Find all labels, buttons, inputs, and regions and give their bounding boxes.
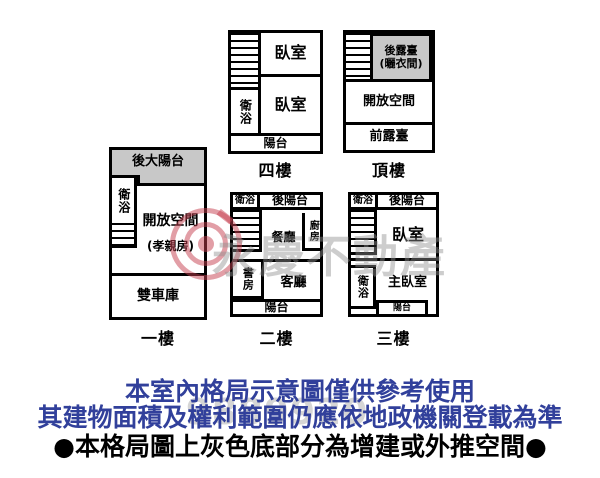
room-bathroom: 衛浴 bbox=[112, 175, 137, 223]
room-rear-large-balcony: 後大陽台 bbox=[112, 150, 204, 175]
room-balcony: 陽台 bbox=[233, 299, 320, 314]
room-bathroom: 衛浴 bbox=[231, 90, 261, 133]
room-rear-balcony: 後陽台 bbox=[378, 195, 436, 210]
room-garage: 雙車庫 bbox=[112, 288, 204, 304]
floor-label-3f: 三樓 bbox=[348, 325, 439, 349]
disclaimer-line-3: ●本格局圖上灰色底部分為增建或外推空間● bbox=[0, 427, 600, 463]
floor-label-4f: 四樓 bbox=[228, 157, 323, 181]
floor-label-1f: 一樓 bbox=[109, 325, 207, 349]
room-open-space: 開放空間 bbox=[346, 82, 432, 125]
floorplan-canvas: 衛浴 臥室 臥室 陽台 四樓 後露臺 (曬衣間) 開放空間 前露臺 頂樓 後大陽… bbox=[0, 0, 600, 478]
floorplan-4f: 衛浴 臥室 臥室 陽台 bbox=[228, 30, 323, 154]
stairs-pattern bbox=[112, 223, 137, 248]
floor-label-roof: 頂樓 bbox=[343, 157, 435, 181]
room-front-terrace: 前露臺 bbox=[346, 125, 432, 150]
stairs-pattern bbox=[346, 33, 370, 82]
room-bedroom: 臥室 bbox=[261, 77, 320, 133]
room-bedroom: 臥室 bbox=[261, 33, 320, 77]
room-rear-large-balcony-step bbox=[137, 175, 204, 186]
room-rear-terrace-label: 後露臺 bbox=[385, 45, 418, 58]
floor-label-2f: 二樓 bbox=[230, 325, 323, 349]
stairs-pattern bbox=[231, 33, 261, 90]
room-balcony: 陽台 bbox=[231, 133, 320, 151]
room-rear-balcony: 後陽台 bbox=[260, 195, 320, 210]
room-bathroom: 衛浴 bbox=[351, 195, 378, 210]
room-rear-terrace-sublabel: (曬衣間) bbox=[379, 58, 422, 71]
brand-text-watermark: 永慶不動產 bbox=[212, 220, 447, 285]
room-rear-terrace: 後露臺 (曬衣間) bbox=[370, 33, 432, 82]
floorplan-roof: 後露臺 (曬衣間) 開放空間 前露臺 bbox=[343, 30, 435, 153]
room-balcony: 陽台 bbox=[376, 300, 428, 314]
